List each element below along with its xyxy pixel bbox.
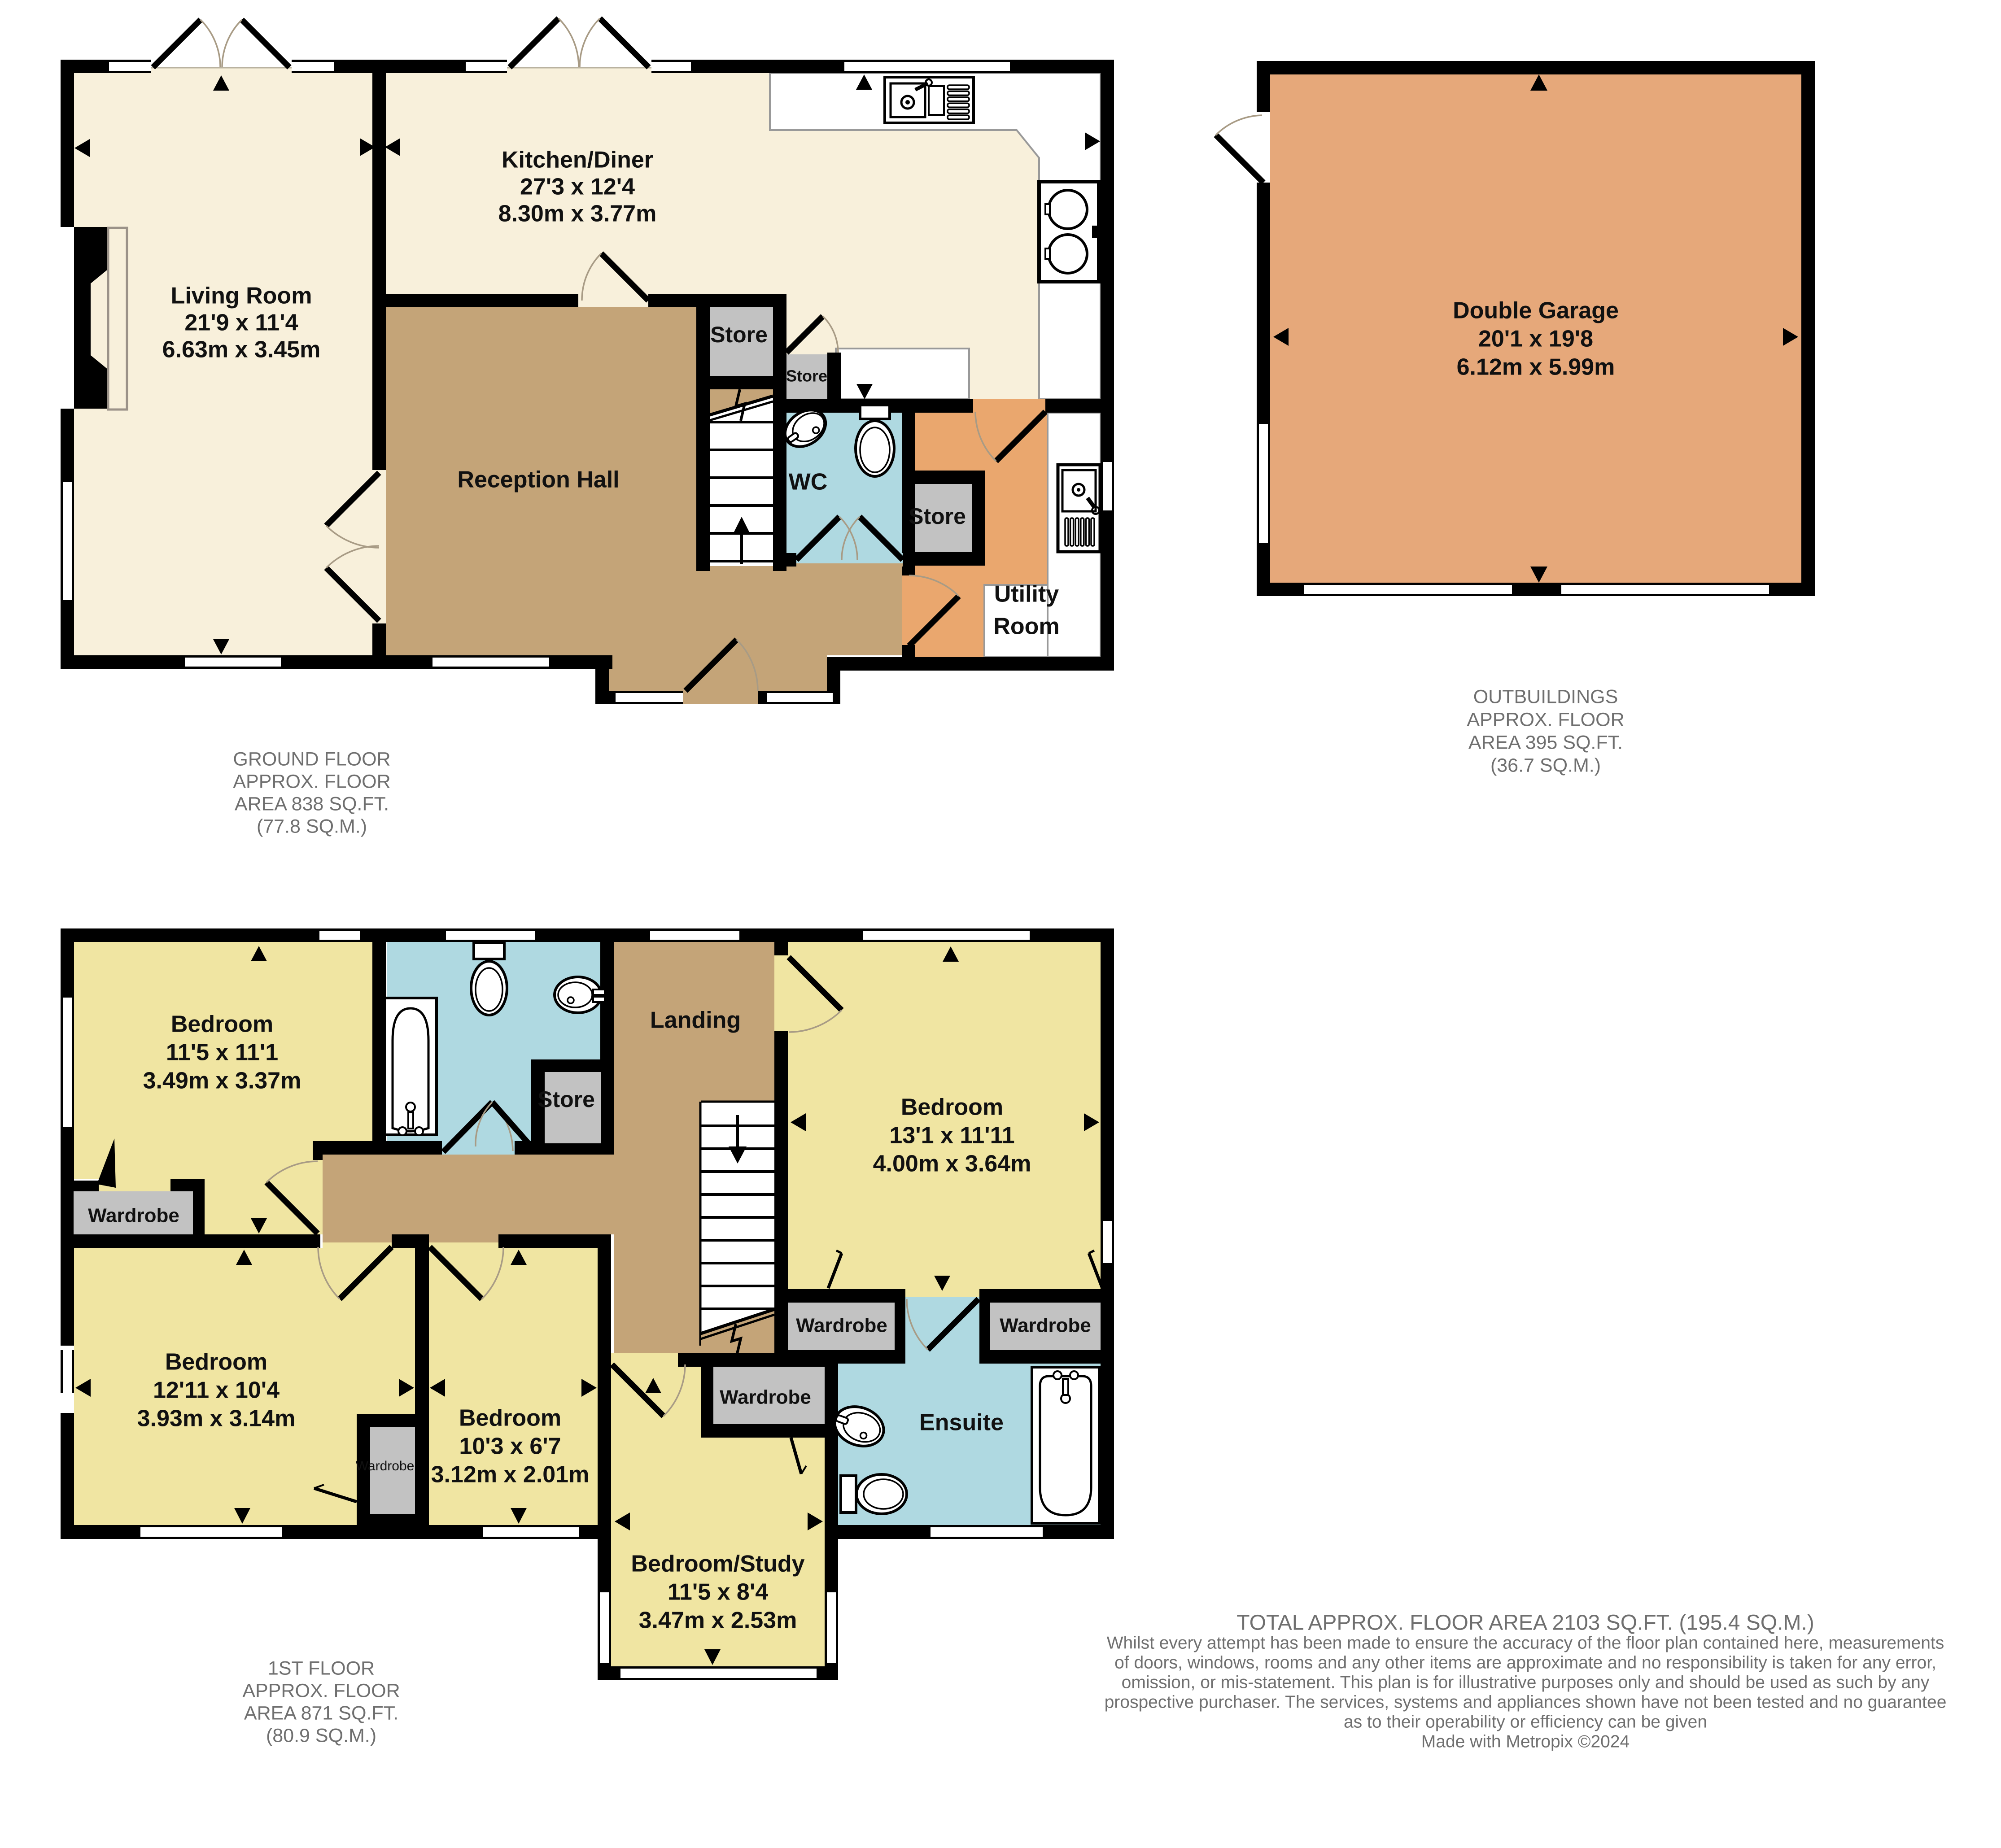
svg-text:Reception Hall: Reception Hall — [457, 467, 619, 493]
svg-text:TOTAL APPROX. FLOOR AREA 2103: TOTAL APPROX. FLOOR AREA 2103 SQ.FT. (19… — [1236, 1611, 1814, 1635]
svg-text:Utility: Utility — [994, 581, 1059, 607]
svg-text:27'3 x 12'4: 27'3 x 12'4 — [520, 174, 635, 200]
svg-text:Wardrobe: Wardrobe — [1000, 1315, 1091, 1337]
svg-text:WC: WC — [789, 469, 828, 495]
svg-text:Bedroom: Bedroom — [171, 1011, 273, 1037]
svg-text:11'5 x 8'4: 11'5 x 8'4 — [668, 1579, 768, 1605]
svg-text:AREA 871 SQ.FT.: AREA 871 SQ.FT. — [244, 1702, 398, 1724]
svg-text:11'5 x 11'1: 11'5 x 11'1 — [166, 1040, 278, 1066]
svg-text:Landing: Landing — [650, 1007, 741, 1033]
svg-text:3.12m x 2.01m: 3.12m x 2.01m — [431, 1462, 590, 1488]
svg-text:(77.8 SQ.M.): (77.8 SQ.M.) — [257, 815, 367, 837]
svg-text:3.93m x 3.14m: 3.93m x 3.14m — [137, 1406, 296, 1432]
svg-text:Wardrobe: Wardrobe — [796, 1315, 887, 1337]
svg-text:20'1 x 19'8: 20'1 x 19'8 — [1478, 326, 1593, 352]
svg-text:Double Garage: Double Garage — [1453, 298, 1619, 324]
svg-text:AREA 838 SQ.FT.: AREA 838 SQ.FT. — [235, 793, 389, 815]
svg-text:3.47m x 2.53m: 3.47m x 2.53m — [639, 1608, 797, 1634]
svg-text:Room: Room — [993, 614, 1059, 640]
svg-text:Store: Store — [909, 504, 966, 529]
svg-text:Ensuite: Ensuite — [919, 1410, 1004, 1436]
svg-text:Bedroom: Bedroom — [165, 1349, 267, 1375]
svg-text:Bedroom: Bedroom — [901, 1094, 1003, 1120]
svg-text:6.12m x 5.99m: 6.12m x 5.99m — [1457, 354, 1615, 380]
svg-text:3.49m x 3.37m: 3.49m x 3.37m — [143, 1068, 301, 1094]
svg-text:Bedroom/Study: Bedroom/Study — [631, 1551, 804, 1577]
svg-text:12'11 x 10'4: 12'11 x 10'4 — [153, 1377, 280, 1403]
svg-text:Store: Store — [710, 322, 768, 347]
svg-text:GROUND FLOOR: GROUND FLOOR — [233, 748, 390, 770]
svg-text:4.00m x 3.64m: 4.00m x 3.64m — [873, 1151, 1031, 1177]
svg-text:of doors, windows, rooms and a: of doors, windows, rooms and any other i… — [1114, 1653, 1936, 1672]
svg-text:Wardrobe: Wardrobe — [720, 1386, 811, 1408]
svg-text:Store: Store — [786, 367, 827, 385]
svg-text:omission, or mis-statement. Th: omission, or mis-statement. This plan is… — [1122, 1673, 1930, 1692]
svg-text:Kitchen/Diner: Kitchen/Diner — [502, 147, 653, 173]
svg-text:10'3 x 6'7: 10'3 x 6'7 — [459, 1434, 561, 1460]
svg-text:Whilst every attempt has been: Whilst every attempt has been made to en… — [1107, 1633, 1944, 1652]
svg-text:OUTBUILDINGS: OUTBUILDINGS — [1473, 686, 1618, 707]
svg-text:APPROX. FLOOR: APPROX. FLOOR — [233, 771, 390, 792]
svg-text:21'9 x 11'4: 21'9 x 11'4 — [184, 310, 298, 336]
svg-text:Made with Metropix ©2024: Made with Metropix ©2024 — [1421, 1732, 1630, 1751]
svg-text:(80.9 SQ.M.): (80.9 SQ.M.) — [266, 1725, 376, 1746]
svg-text:APPROX. FLOOR: APPROX. FLOOR — [1467, 709, 1624, 730]
svg-text:8.30m x 3.77m: 8.30m x 3.77m — [498, 201, 657, 227]
svg-text:prospective purchaser. The ser: prospective purchaser. The services, sys… — [1105, 1692, 1947, 1712]
svg-text:APPROX. FLOOR: APPROX. FLOOR — [242, 1680, 400, 1701]
svg-text:Wardrobe: Wardrobe — [356, 1459, 415, 1473]
svg-text:Store: Store — [537, 1087, 595, 1112]
svg-text:as to their operability or eff: as to their operability or efficiency ca… — [1344, 1712, 1707, 1731]
svg-text:13'1 x 11'11: 13'1 x 11'11 — [889, 1123, 1014, 1149]
svg-text:(36.7 SQ.M.): (36.7 SQ.M.) — [1490, 754, 1601, 776]
svg-text:Living Room: Living Room — [171, 283, 312, 309]
svg-text:Bedroom: Bedroom — [459, 1405, 561, 1431]
svg-text:AREA 395 SQ.FT.: AREA 395 SQ.FT. — [1468, 732, 1623, 753]
svg-text:1ST FLOOR: 1ST FLOOR — [268, 1657, 375, 1679]
svg-text:Wardrobe: Wardrobe — [88, 1205, 179, 1227]
svg-text:6.63m x 3.45m: 6.63m x 3.45m — [162, 337, 321, 363]
